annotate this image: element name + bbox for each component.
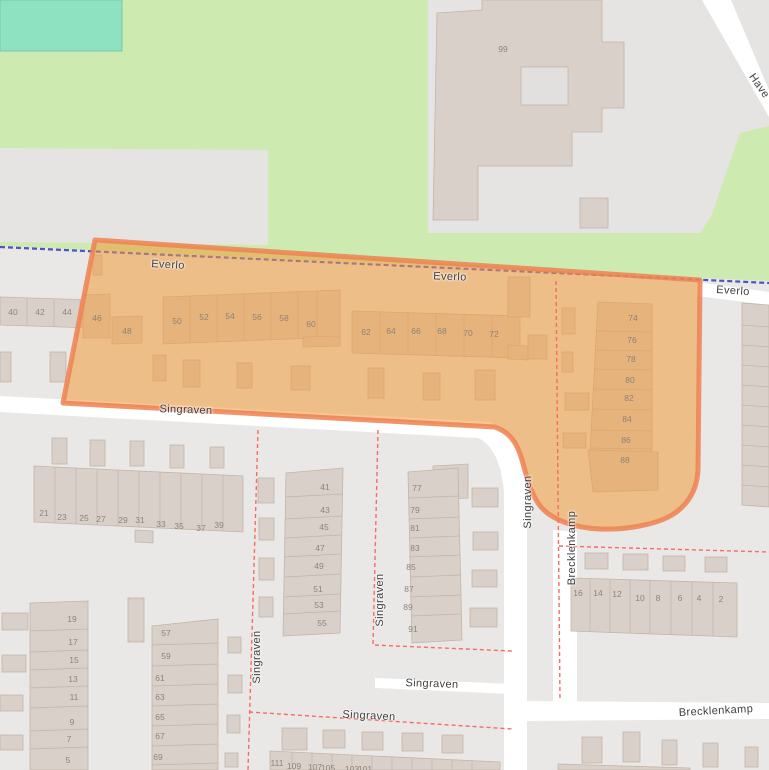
building-tall bbox=[128, 598, 144, 642]
building-row-21-39 bbox=[34, 466, 243, 543]
building-column-77-91 bbox=[408, 464, 468, 643]
building-row-101-111 bbox=[270, 751, 500, 770]
building-strip-right bbox=[742, 303, 769, 507]
building-column-41-55 bbox=[283, 468, 343, 636]
building-column-57-69 bbox=[152, 619, 218, 770]
building-row-2-16 bbox=[571, 578, 737, 637]
road-brecklenkamp bbox=[527, 701, 769, 721]
map-canvas[interactable]: EverloEverloEverloHaveSingravenSingraven… bbox=[0, 0, 769, 770]
building-column-5-19 bbox=[30, 601, 88, 770]
sports-pitch bbox=[0, 0, 122, 51]
road-everlo bbox=[697, 282, 769, 305]
map-graphics bbox=[0, 0, 769, 770]
road-singraven-stub bbox=[375, 678, 513, 694]
